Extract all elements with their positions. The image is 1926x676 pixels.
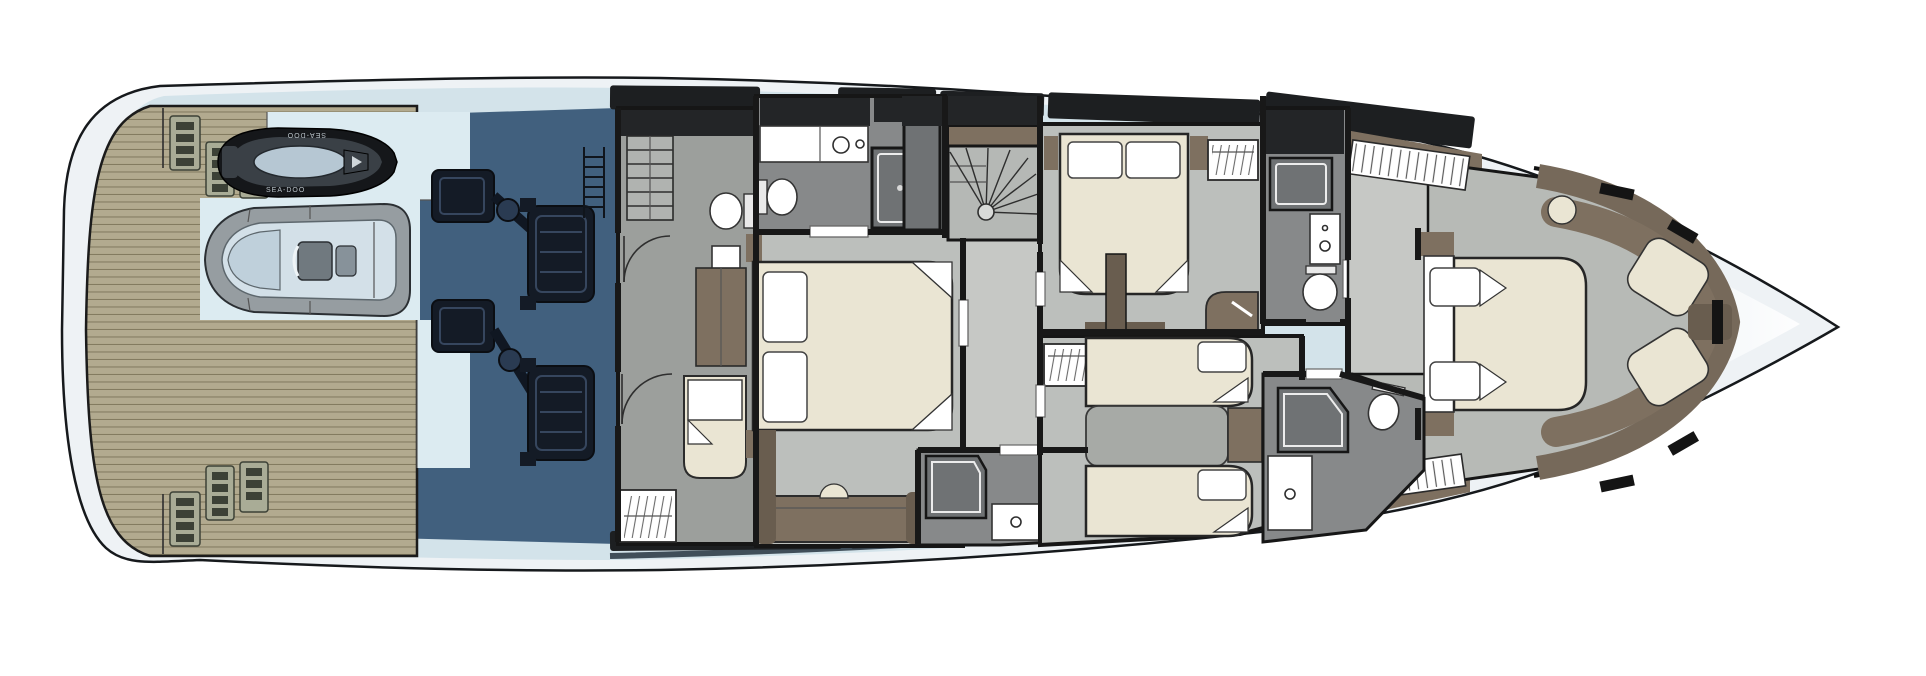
guest-vanity-seat	[1206, 292, 1258, 332]
master-sliding-door	[810, 226, 868, 237]
master-sofa	[756, 492, 926, 544]
deck-plan-svg: SEA-DOO SEA-DOO	[0, 0, 1926, 676]
mid-bath-toilet	[1303, 266, 1337, 310]
fwd-shower	[1278, 388, 1348, 452]
crew-hanging-locker	[620, 490, 676, 542]
tender-console	[298, 242, 332, 280]
ensuite-sink	[992, 504, 1040, 540]
crew-berth-pillow	[688, 380, 742, 420]
fwd-bath-door	[1306, 369, 1342, 379]
aft-deck-group: SEA-DOO SEA-DOO	[86, 106, 618, 556]
vip-bed	[1420, 232, 1586, 436]
vip-pillow-1	[1430, 268, 1480, 306]
ensuite-door	[1000, 445, 1042, 455]
vip-pillow-2	[1430, 362, 1480, 400]
jetski: SEA-DOO SEA-DOO	[218, 128, 397, 197]
vip-lobby-floor	[1348, 152, 1428, 374]
twin-nightstand	[1228, 408, 1262, 462]
corridor-floor	[963, 240, 1040, 460]
twin-bed-2-base	[1086, 406, 1228, 466]
tender-seat	[336, 246, 356, 276]
tender	[205, 204, 410, 316]
fwd-bathroom-group	[1263, 369, 1424, 542]
mid-bath-sink	[1310, 214, 1340, 264]
crew-top-cabinet	[620, 110, 754, 136]
bow-pad	[1548, 196, 1576, 224]
crew-toilet	[710, 193, 754, 229]
yacht-deck-plan: SEA-DOO SEA-DOO	[0, 0, 1926, 676]
guest-double-group	[1036, 124, 1263, 333]
guest-twin-door	[1036, 385, 1045, 417]
bow-console	[1688, 304, 1732, 340]
ensuite-shower	[926, 456, 986, 518]
crew-stairs	[627, 136, 673, 220]
mid-bath-cabinet	[1266, 110, 1344, 154]
master-vanity	[760, 126, 868, 162]
master-pillow-2	[763, 352, 807, 422]
fwd-sink	[1268, 456, 1312, 530]
stair-newel-post	[978, 204, 994, 220]
twin-bed-1	[1086, 338, 1252, 406]
guest-tv-unit	[1106, 254, 1126, 332]
twin-bed-2	[1086, 466, 1252, 536]
jetski-seat	[254, 146, 346, 178]
jetski-rear-handle	[222, 146, 238, 178]
mid-bathroom-group	[1263, 108, 1353, 324]
master-toilet	[758, 179, 797, 215]
guest-double-door	[1036, 272, 1045, 306]
master-bath-cabinet	[760, 98, 870, 126]
guest-pillow-1	[1068, 142, 1122, 178]
stair-landing	[948, 126, 1040, 146]
master-bed	[746, 234, 952, 458]
master-pillow-1	[763, 272, 807, 342]
mid-bath-shower	[1270, 158, 1332, 210]
guest-pillow-2	[1126, 142, 1180, 178]
crew-cabin-group	[618, 108, 756, 544]
guest-wardrobe	[1208, 140, 1258, 180]
jetski-brand-text-mirrored: SEA-DOO	[287, 131, 326, 138]
stair-top-cabinet	[902, 96, 1042, 126]
jetski-brand-text: SEA-DOO	[266, 187, 305, 194]
master-entry-door	[959, 300, 968, 346]
